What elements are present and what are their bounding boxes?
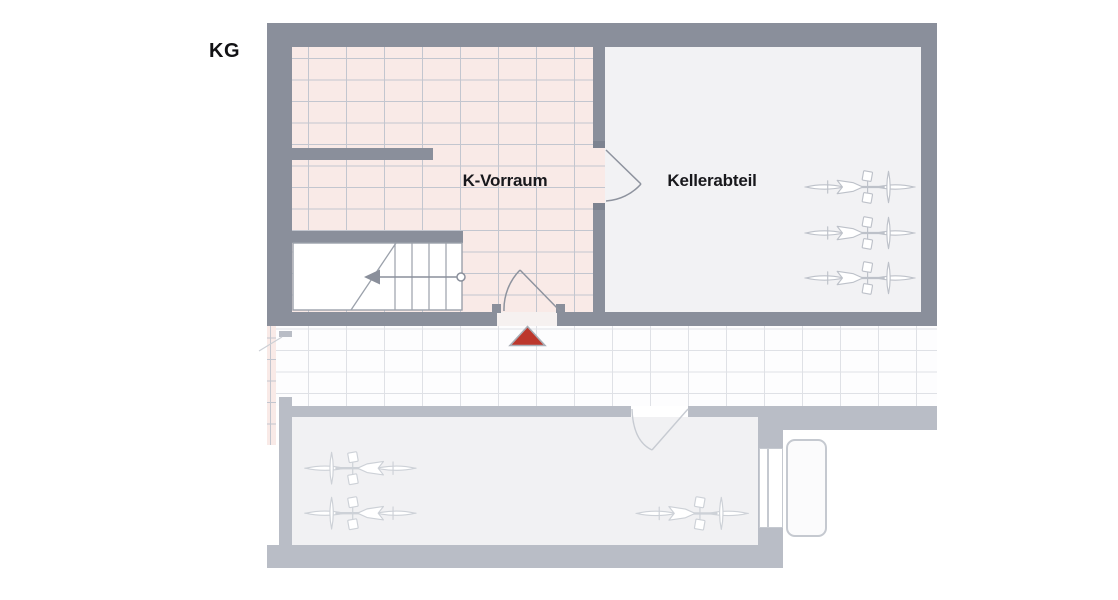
floor-level-label: KG [209,40,240,63]
door-swing-corridor-icon [259,337,282,351]
bike-icon [305,452,416,485]
bike-icon [805,217,915,250]
door-swing-lower-room-icon [632,409,688,450]
stairs-icon [293,243,465,310]
plan-linework [0,0,1118,600]
entrance-marker-icon [510,327,545,346]
room-label-k-vorraum: K-Vorraum [420,171,590,191]
bike-icon [305,497,416,530]
floor-plan-page: { "labels": { "kg": "KG", "k_vorraum": "… [0,0,1118,600]
bike-icon [636,497,749,530]
bike-icon [805,171,915,204]
room-label-kellerabteil: Kellerabteil [627,171,797,191]
door-swing-entrance-icon [504,270,560,311]
bike-icon [805,262,915,295]
